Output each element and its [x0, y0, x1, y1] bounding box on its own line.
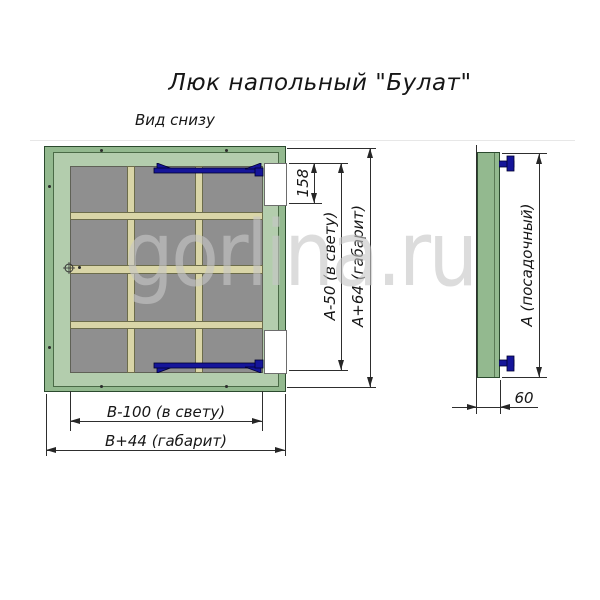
dim-arrow — [46, 447, 56, 453]
dimension-line — [539, 154, 540, 377]
extension-line — [287, 148, 376, 149]
dim-label-depth: 60 — [506, 389, 542, 407]
screw-dot — [225, 149, 228, 152]
dimension-line — [341, 163, 342, 370]
dim-label-clear-height: А-50 (в свету) — [321, 156, 339, 376]
rib-horizontal — [70, 321, 263, 329]
hinge-notch — [264, 163, 287, 206]
rib-horizontal — [70, 212, 263, 220]
dim-arrow — [536, 154, 542, 164]
drawing-canvas: Люк напольный "Булат" Вид снизу — [0, 0, 600, 600]
extension-line — [502, 377, 547, 378]
hinge-icon — [499, 155, 517, 172]
separator-line — [30, 140, 575, 141]
hinge-icon — [499, 355, 517, 372]
dim-label-overall-height: А+64 (габарит) — [349, 156, 367, 376]
drawing-title: Люк напольный "Булат" — [130, 70, 510, 96]
dim-label-overall-width: В+44 (габарит) — [56, 432, 276, 450]
profile-groove — [494, 153, 495, 377]
view-label: Вид снизу — [135, 111, 215, 129]
dim-arrow — [467, 404, 477, 410]
dim-arrow — [536, 367, 542, 377]
dimension-line — [70, 421, 262, 422]
screw-dot — [100, 385, 103, 388]
extension-line — [287, 387, 376, 388]
screw-dot — [48, 185, 51, 188]
screw-dot — [225, 385, 228, 388]
dimension-line — [370, 148, 371, 387]
dim-label-seat: А (посадочный) — [518, 155, 536, 375]
extension-line — [285, 394, 286, 456]
dim-label-clear-width: В-100 (в свету) — [56, 403, 276, 421]
hinge-icon — [152, 359, 266, 373]
extension-line — [476, 145, 477, 414]
center-mark-icon — [63, 262, 75, 274]
screw-dot — [100, 149, 103, 152]
screw-dot — [78, 266, 81, 269]
hinge-icon — [152, 163, 266, 177]
screw-dot — [48, 346, 51, 349]
dim-arrow — [275, 447, 285, 453]
hinge-notch — [264, 330, 287, 374]
dimension-line — [46, 450, 285, 451]
dim-arrow — [367, 148, 373, 158]
dimension-line — [452, 407, 538, 408]
extension-line — [289, 370, 348, 371]
dim-arrow — [367, 377, 373, 387]
dim-label-notch: 158 — [294, 153, 312, 213]
bottom-view-drawing — [44, 146, 286, 392]
rib-horizontal — [70, 265, 263, 274]
side-view-drawing — [477, 152, 500, 378]
